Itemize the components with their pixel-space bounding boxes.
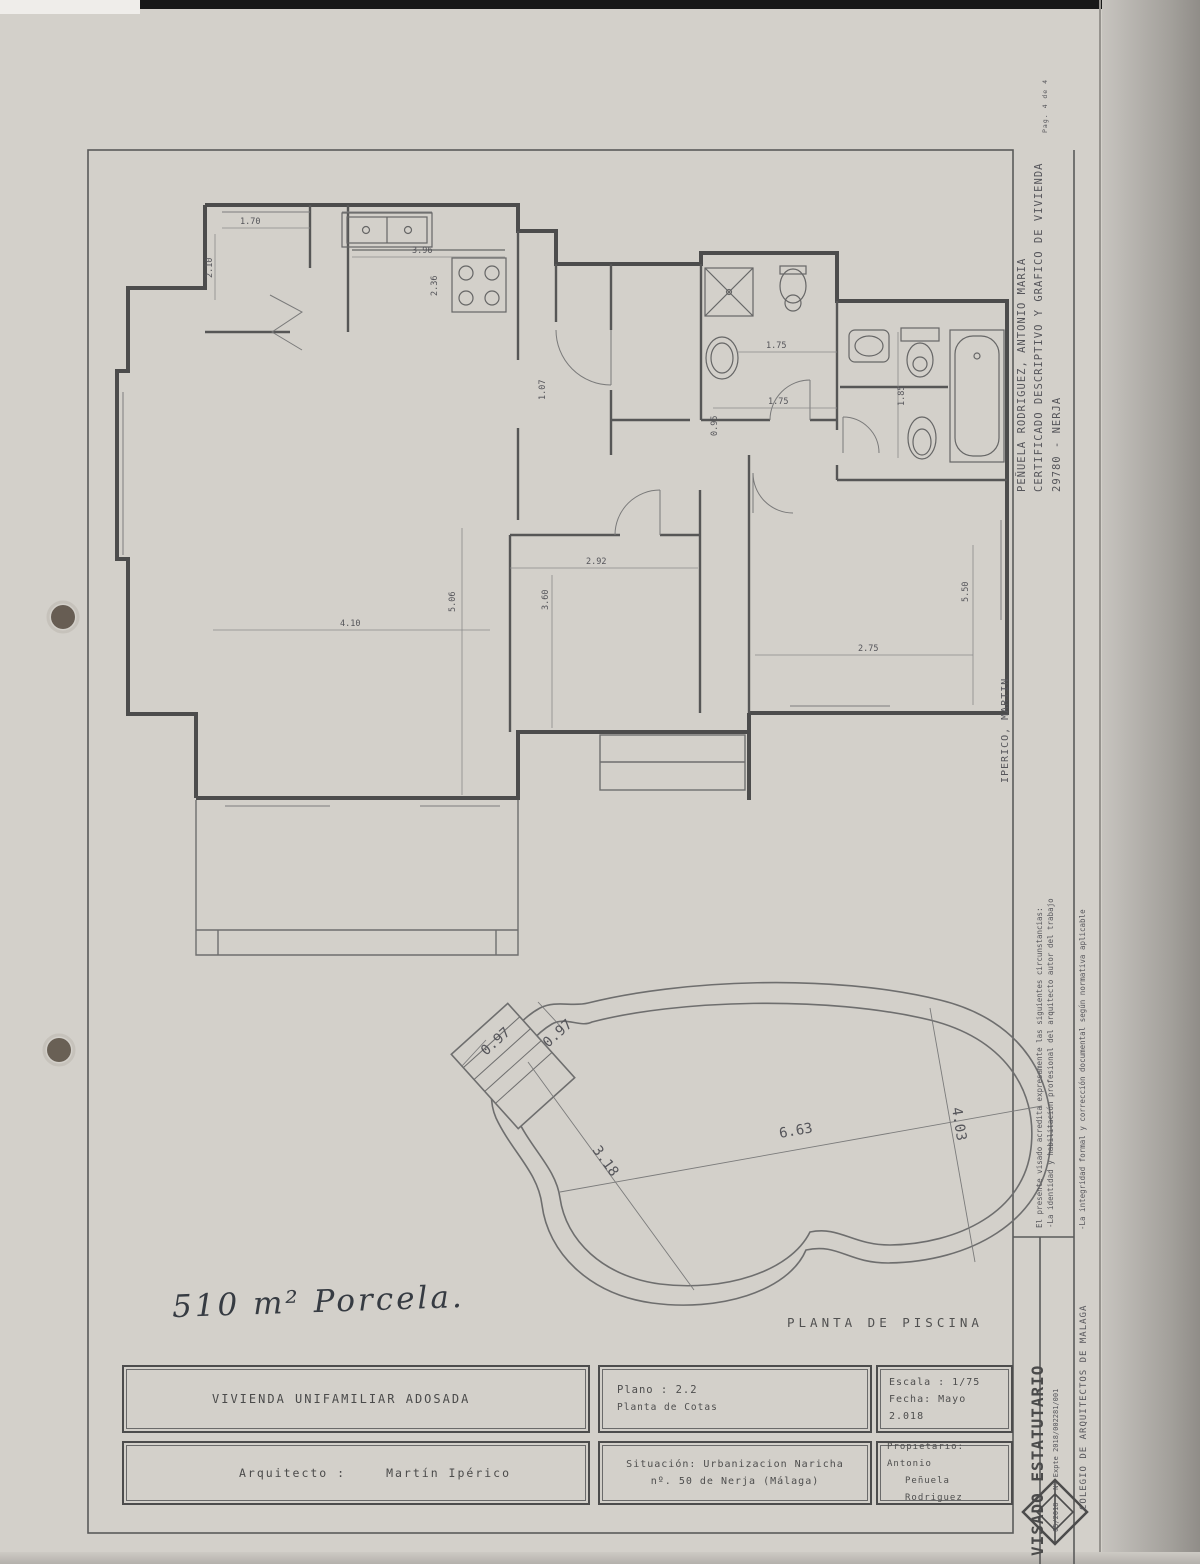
toilet: [780, 266, 806, 311]
page-number-label: Pag. 4 de 4: [1041, 79, 1049, 133]
pool-outline-outer: [491, 983, 1051, 1306]
dim-label: 2.75: [858, 644, 878, 654]
dim-label: 3.60: [541, 590, 551, 610]
dim-label: 5.50: [961, 582, 971, 602]
dim-label: 4.10: [340, 619, 360, 629]
kitchen-sink: [342, 213, 432, 247]
punch-holes: [44, 602, 78, 1065]
fecha-value: Fecha: Mayo 2.018: [889, 1391, 1008, 1425]
stove-hob: [352, 250, 506, 312]
visado-expediente: 05/2018 - Nº Expte 2018/002281/001: [1052, 1389, 1060, 1532]
floor-plan: 1.70 2.10 3.96 2.36 1.07 1.75 1.75 0.95 …: [117, 205, 1007, 955]
titleblock-propietario-cell: Propietario: Antonio Peñuela Rodriguez: [876, 1441, 1013, 1505]
shower: [705, 268, 753, 316]
door-swings: [270, 295, 879, 535]
dim-label: 3.96: [412, 246, 432, 256]
architect-name: Martín Ipérico: [386, 1466, 511, 1480]
outer-walls: [117, 205, 1007, 800]
dim-label: 3.18: [589, 1143, 622, 1180]
washbasin: [706, 337, 738, 379]
situacion-line2: nº. 50 de Nerja (Málaga): [651, 1473, 820, 1490]
double-door-mark: [270, 295, 302, 350]
escala-value: Escala : 1/75: [889, 1374, 1008, 1391]
dim-label: 1.70: [240, 217, 260, 227]
architect-name-vertical: IPERICO, MARTIN: [1000, 678, 1011, 783]
bidet: [908, 417, 936, 459]
terrace: [196, 735, 745, 955]
dimension-lines: [213, 228, 973, 795]
toilet-2: [901, 328, 939, 377]
dim-label: 2.92: [586, 557, 606, 567]
plano-name: Planta de Cotas: [617, 1400, 867, 1416]
titleblock-plano-cell: Plano : 2.2 Planta de Cotas: [598, 1365, 872, 1433]
titleblock-architect-cell: Arquitecto : Martín Ipérico: [122, 1441, 590, 1505]
dim-label: 5.06: [448, 592, 458, 612]
architect-label: Arquitecto :: [239, 1466, 346, 1480]
dim-label: 1.85: [897, 386, 907, 406]
visado-statement-1: El presente visado acredita expresamente…: [1035, 907, 1044, 1228]
interior-walls: [205, 205, 1007, 732]
owner-name-vertical: PEÑUELA RODRIGUEZ, ANTONIO MARIA: [1016, 258, 1028, 492]
bathtub: [950, 330, 1004, 462]
colegio-name-vertical: COLEGIO DE ARQUITECTOS DE MALAGA: [1079, 1305, 1089, 1510]
pool-plan: 0.97 0.97 6.63 3.18 4.03: [451, 983, 1051, 1306]
situacion-line1: Situación: Urbanizacion Naricha: [626, 1456, 844, 1473]
visado-statement-3: -La integridad formal y corrección docum…: [1078, 909, 1087, 1230]
pool-plan-caption: PLANTA DE PISCINA: [787, 1315, 983, 1330]
project-title: VIVIENDA UNIFAMILIAR ADOSADA: [212, 1392, 585, 1406]
drawing-canvas: 1.70 2.10 3.96 2.36 1.07 1.75 1.75 0.95 …: [0, 0, 1200, 1564]
dim-label: 2.10: [205, 258, 215, 278]
plano-number: Plano : 2.2: [617, 1382, 867, 1400]
titleblock-situacion-cell: Situación: Urbanizacion Naricha nº. 50 d…: [598, 1441, 872, 1505]
propietario-line2: Peñuela Rodriguez: [887, 1473, 1008, 1507]
scanned-plan-sheet: 1.70 2.10 3.96 2.36 1.07 1.75 1.75 0.95 …: [0, 0, 1200, 1564]
dim-label: 1.75: [768, 397, 788, 407]
titleblock-escala-cell: Escala : 1/75 Fecha: Mayo 2.018: [876, 1365, 1013, 1433]
dimension-labels: 1.70 2.10 3.96 2.36 1.07 1.75 1.75 0.95 …: [205, 217, 971, 654]
dim-label: 4.03: [948, 1106, 969, 1142]
dim-label: 0.95: [710, 416, 720, 436]
propietario-line1: Propietario: Antonio: [887, 1439, 1008, 1473]
visado-stamp-title: VISADO ESTATUTARIO: [1028, 1365, 1047, 1556]
titleblock-project-cell: VIVIENDA UNIFAMILIAR ADOSADA: [122, 1365, 590, 1433]
dim-label: 1.75: [766, 341, 786, 351]
postal-code-vertical: 29780 - NERJA: [1051, 397, 1063, 492]
visado-statement-2: -La identidad y habilitación profesional…: [1046, 898, 1055, 1228]
sheet-frame: [88, 150, 1074, 1564]
certificate-title-vertical: CERTIFICADO DESCRIPTIVO Y GRAFICO DE VIV…: [1033, 163, 1045, 492]
dim-label: 1.07: [538, 380, 548, 400]
washbasin-2: [849, 330, 889, 362]
dim-label: 2.36: [430, 276, 440, 296]
dim-label: 6.63: [778, 1120, 814, 1142]
